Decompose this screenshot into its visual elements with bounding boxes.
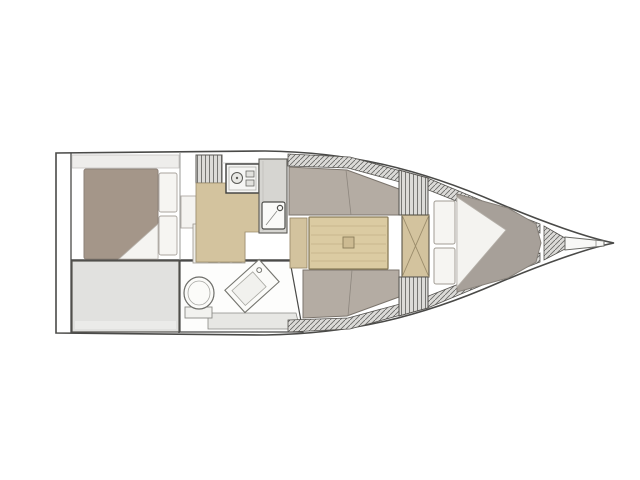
salon-cabinet [290,218,307,268]
aft-bed-pillow-2 [159,216,177,255]
aft-cabin-shelf [72,155,179,168]
salon-table [309,217,388,269]
forward-bulkhead-door [402,215,429,277]
floor-plan-canvas [0,0,640,480]
head-bench [208,313,300,329]
toilet [184,277,214,309]
stove-knob [246,180,254,186]
bulkhead-locker-top [399,170,428,215]
galley-locker-hatched [196,155,222,183]
galley-sink [262,202,285,229]
aft-cabin-seat [181,196,196,228]
v-berth-step-2 [434,248,455,284]
stove-knob [246,171,254,177]
v-berth-step-1 [434,201,455,244]
aft-utility-ledge [75,321,176,329]
aft-bed-pillow-1 [159,173,177,212]
mast-post [343,237,354,248]
galley-stove [226,164,259,193]
floor-plan-drawing [0,0,640,480]
